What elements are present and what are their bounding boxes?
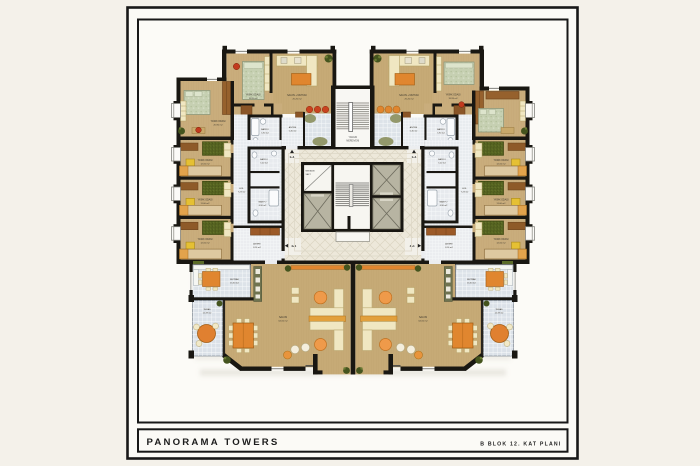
svg-text:YATAK ODASI: YATAK ODASI bbox=[494, 159, 509, 162]
svg-text:ANTRE: ANTRE bbox=[445, 243, 453, 246]
svg-text:12.00 m2: 12.00 m2 bbox=[200, 163, 210, 165]
svg-text:25.20 m2: 25.20 m2 bbox=[292, 98, 302, 100]
svg-text:HOL: HOL bbox=[462, 188, 467, 190]
svg-text:5.90 m2: 5.90 m2 bbox=[437, 132, 445, 134]
svg-text:MERDIVENI: MERDIVENI bbox=[346, 140, 359, 142]
svg-text:64.00 m2: 64.00 m2 bbox=[418, 321, 428, 323]
svg-text:5.45 m2: 5.45 m2 bbox=[410, 130, 418, 132]
svg-text:25.20 m2: 25.20 m2 bbox=[404, 98, 414, 100]
svg-text:B BLOK 12. KAT PLANI: B BLOK 12. KAT PLANI bbox=[480, 441, 561, 447]
svg-text:12.00 m2: 12.00 m2 bbox=[200, 243, 210, 245]
svg-text:HOL: HOL bbox=[239, 188, 244, 190]
svg-text:YATAK ODASI: YATAK ODASI bbox=[446, 94, 461, 97]
svg-text:SALON: SALON bbox=[419, 316, 427, 319]
svg-text:5.90 m2: 5.90 m2 bbox=[261, 132, 269, 134]
svg-text:YATAK ODASI: YATAK ODASI bbox=[246, 94, 261, 97]
svg-text:SALON + MUTFAK: SALON + MUTFAK bbox=[399, 94, 419, 97]
svg-text:4+1: 4+1 bbox=[291, 244, 296, 248]
svg-text:15.30 m2: 15.30 m2 bbox=[467, 282, 477, 284]
svg-text:BANYO: BANYO bbox=[437, 128, 445, 131]
svg-text:YATAK ODASI: YATAK ODASI bbox=[198, 238, 213, 241]
svg-text:ANTRE: ANTRE bbox=[253, 243, 261, 246]
svg-text:20.90 m2: 20.90 m2 bbox=[213, 124, 223, 126]
svg-text:SAFT: SAFT bbox=[306, 173, 312, 176]
svg-text:12.00 m2: 12.00 m2 bbox=[496, 243, 506, 245]
svg-text:4+1: 4+1 bbox=[410, 244, 415, 248]
svg-text:YATAK ODASI: YATAK ODASI bbox=[211, 120, 226, 123]
svg-text:YATAK ODASI: YATAK ODASI bbox=[494, 238, 509, 241]
svg-text:BANYO: BANYO bbox=[261, 128, 269, 131]
svg-text:SALON + MUTFAK: SALON + MUTFAK bbox=[287, 94, 307, 97]
svg-text:TERAS: TERAS bbox=[203, 308, 211, 311]
svg-text:BANYO: BANYO bbox=[438, 158, 446, 161]
svg-text:1+1: 1+1 bbox=[411, 155, 416, 159]
svg-text:YATAK ODASI: YATAK ODASI bbox=[198, 199, 213, 202]
svg-text:5.45 m2: 5.45 m2 bbox=[289, 130, 297, 132]
svg-text:SALON: SALON bbox=[279, 316, 287, 319]
svg-text:ANTRE: ANTRE bbox=[410, 126, 418, 129]
svg-text:19.95 m2: 19.95 m2 bbox=[448, 98, 458, 100]
svg-text:ANTRE: ANTRE bbox=[289, 126, 297, 129]
svg-text:15.30 m2: 15.30 m2 bbox=[230, 282, 240, 284]
svg-text:6.90 m2: 6.90 m2 bbox=[440, 205, 448, 207]
svg-text:12.39 m2: 12.39 m2 bbox=[495, 312, 505, 314]
svg-text:BANYO: BANYO bbox=[260, 158, 268, 161]
svg-text:12.00 m2: 12.00 m2 bbox=[496, 163, 506, 165]
svg-text:MEKANIK: MEKANIK bbox=[306, 170, 316, 173]
svg-text:19.95 m2: 19.95 m2 bbox=[248, 98, 258, 100]
svg-text:64.00 m2: 64.00 m2 bbox=[278, 321, 288, 323]
svg-text:8.16 m2: 8.16 m2 bbox=[253, 247, 261, 249]
svg-text:7.23 m2: 7.23 m2 bbox=[238, 191, 246, 193]
svg-text:11.00 m2: 11.00 m2 bbox=[497, 203, 507, 205]
svg-text:BANYO: BANYO bbox=[259, 201, 267, 204]
svg-text:1+1: 1+1 bbox=[289, 155, 294, 159]
svg-text:11.00 m2: 11.00 m2 bbox=[201, 203, 211, 205]
svg-text:MUTFAK: MUTFAK bbox=[467, 278, 476, 281]
svg-text:PANORAMA TOWERS: PANORAMA TOWERS bbox=[147, 437, 280, 448]
svg-text:8.16 m2: 8.16 m2 bbox=[445, 247, 453, 249]
svg-text:12.39 m2: 12.39 m2 bbox=[203, 312, 213, 314]
svg-text:7.23 m2: 7.23 m2 bbox=[461, 191, 469, 193]
svg-text:TERAS: TERAS bbox=[495, 308, 503, 311]
svg-text:YATAK ODASI: YATAK ODASI bbox=[494, 199, 509, 202]
svg-text:5.20 m2: 5.20 m2 bbox=[260, 162, 268, 164]
svg-text:YANGIN: YANGIN bbox=[348, 136, 357, 139]
svg-text:6.90 m2: 6.90 m2 bbox=[259, 205, 267, 207]
svg-text:YATAK ODASI: YATAK ODASI bbox=[198, 159, 213, 162]
svg-text:BANYO: BANYO bbox=[440, 201, 448, 204]
svg-text:5.20 m2: 5.20 m2 bbox=[438, 162, 446, 164]
svg-text:MUTFAK: MUTFAK bbox=[230, 278, 239, 281]
